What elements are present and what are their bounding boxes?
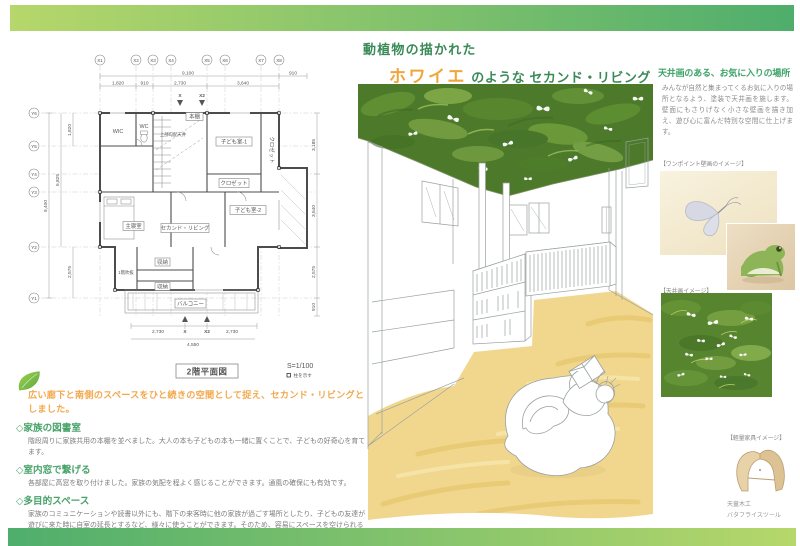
interior-illustration [358, 84, 653, 526]
room-label-bookshelf: 本棚 [189, 113, 200, 121]
svg-text:X7: X7 [258, 58, 264, 63]
room-label-storage1: 収納 [157, 258, 168, 266]
room-label-second-living: セカンド・リビング [161, 224, 210, 232]
features-section: 広い廊下と南側のスペースをひと続きの空間として捉え、セカンド・リビングとしました… [16, 387, 366, 546]
dimensions-right: 3,185 3,640 2,575 910 [311, 113, 320, 316]
svg-text:X2: X2 [199, 93, 205, 99]
plan-legend: 柱を示す [294, 372, 313, 379]
room-label-balcony: バルコニー [177, 301, 204, 308]
svg-text:X8: X8 [276, 58, 282, 63]
room-label-master: 主寝室 [125, 222, 142, 230]
dimensions-bottom: 2,730 2,730 X X2 4,550 [131, 316, 257, 348]
svg-text:2,730: 2,730 [226, 329, 238, 335]
room-label-storage2: 収納 [157, 283, 168, 291]
wall-art-frog-image [727, 224, 795, 290]
svg-text:X1: X1 [97, 58, 103, 63]
svg-text:6,825: 6,825 [55, 174, 61, 186]
butterfly-stool-illustration [737, 450, 785, 491]
brochure-page: X1 X2 X3 X4 X5 X6 X7 X8 Y6 Y5 Y4 Y3 Y2 Y… [0, 0, 800, 546]
svg-text:910: 910 [140, 81, 148, 87]
room-label-closet2: クロゼット [221, 179, 248, 187]
furniture-maker: 天童木工 [727, 500, 781, 511]
right-column: 天井画のある、お気に入りの場所 みんなが自然と集まってくるお気に入りの場所となる… [658, 62, 798, 524]
features-lead: 広い廊下と南側のスペースをひと続きの空間として捉え、セカンド・リビングとしました… [28, 387, 366, 415]
room-label-wc: WC [140, 124, 149, 130]
svg-text:3,640: 3,640 [237, 81, 249, 87]
svg-text:Y2: Y2 [31, 245, 37, 250]
svg-text:X: X [178, 93, 182, 99]
main-title: 動植物の描かれた ホワイエ のような セカンド・リビング [363, 39, 651, 87]
svg-text:9,400: 9,400 [43, 200, 49, 212]
svg-text:1,820: 1,820 [112, 81, 124, 87]
grid-bubbles-x: X1 X2 X3 X4 X5 X6 X7 X8 [95, 55, 284, 65]
svg-text:2,730: 2,730 [152, 329, 164, 335]
room-label-kids1: 子ども室-1 [221, 138, 247, 146]
svg-text:X2: X2 [133, 58, 139, 63]
grid-bubbles-y: Y6 Y5 Y4 Y3 Y2 Y1 [29, 108, 39, 303]
stool-label: 天童木工 バタフライスツール [727, 500, 781, 522]
bottom-accent-bar [8, 528, 796, 546]
svg-text:910: 910 [289, 71, 297, 77]
bookshelf-long [526, 242, 616, 296]
svg-text:4,550: 4,550 [187, 342, 199, 348]
room-label-kids2: 子ども室-2 [235, 206, 261, 214]
ceiling-art-image [661, 293, 772, 397]
room-label-closet1: クロゼット [268, 137, 276, 164]
dimensions-top: 9,100 910 1,820 910 2,730 3,640 X X2 [100, 71, 307, 107]
floor-plan: X1 X2 X3 X4 X5 X6 X7 X8 Y6 Y5 Y4 Y3 Y2 Y… [25, 50, 360, 390]
svg-text:1,820: 1,820 [67, 124, 73, 136]
right-heading: 天井画のある、お気に入りの場所 [658, 66, 798, 79]
room-label-sloped-ceiling: 上部勾配天井 [160, 131, 187, 138]
plan-scale: S=1/100 [287, 363, 313, 370]
right-body: みんなが自然と集まってくるお気に入りの場所となるよう、塗装で天井画を施します。壁… [662, 83, 793, 138]
feature-heading-multipurpose: ◇多目的スペース [16, 493, 366, 507]
svg-text:2,730: 2,730 [174, 81, 186, 87]
feature-item: ◇室内窓で繋げる 各部屋に高窓を取り付けました。家族の気配を程よく感じることがで… [16, 462, 366, 489]
bed [104, 197, 134, 239]
caption-wall-art: 【ワンポイント壁画のイメージ】 [660, 159, 747, 168]
feature-body-library: 階段周りに家族共用の本棚を並べました。大人の本も子どもの本も一緒に置くことで、子… [28, 436, 366, 458]
title-line1: 動植物の描かれた [363, 39, 651, 58]
svg-text:3,640: 3,640 [311, 205, 317, 217]
svg-text:X2: X2 [204, 329, 210, 335]
feature-item: ◇家族の図書室 階段周りに家族共用の本棚を並べました。大人の本も子どもの本も一緒… [16, 420, 366, 458]
svg-text:Y6: Y6 [31, 111, 37, 116]
dimensions-left: 9,400 6,825 1,820 2,575 [43, 113, 73, 298]
room-label-void: 1階吹抜 [118, 269, 134, 276]
svg-text:X5: X5 [204, 58, 210, 63]
caption-furniture: 【軽量家具イメージ】 [727, 433, 785, 442]
title-line2-rest: のような セカンド・リビング [471, 70, 651, 85]
plan-walls [99, 112, 307, 313]
svg-text:X3: X3 [150, 58, 156, 63]
svg-text:3,185: 3,185 [311, 139, 317, 151]
svg-text:Y5: Y5 [31, 144, 37, 149]
svg-text:X: X [183, 329, 187, 335]
room-label-wic: WIC [113, 129, 124, 135]
svg-text:X6: X6 [222, 58, 228, 63]
plan-title: 2階平面図 [187, 367, 228, 377]
svg-text:X4: X4 [168, 58, 174, 63]
frog-shadow [742, 277, 784, 284]
toilet [141, 131, 148, 142]
feature-heading-windows: ◇室内窓で繋げる [16, 462, 366, 476]
svg-text:2,575: 2,575 [311, 266, 317, 278]
svg-text:Y3: Y3 [31, 190, 37, 195]
top-accent-bar [10, 5, 794, 31]
svg-text:9,100: 9,100 [182, 71, 194, 77]
svg-text:2,575: 2,575 [67, 266, 73, 278]
svg-text:Y1: Y1 [31, 296, 37, 301]
feature-heading-library: ◇家族の図書室 [16, 420, 366, 434]
frog-illustration [741, 245, 785, 277]
feature-body-windows: 各部屋に高窓を取り付けました。家族の気配を程よく感じることができます。通風の確保… [28, 478, 366, 489]
plan-title-block: 2階平面図 S=1/100 柱を示す [176, 363, 313, 379]
svg-text:910: 910 [311, 303, 317, 311]
stool-image [727, 444, 793, 498]
furniture-name: バタフライスツール [727, 511, 781, 522]
svg-text:Y4: Y4 [31, 172, 37, 177]
